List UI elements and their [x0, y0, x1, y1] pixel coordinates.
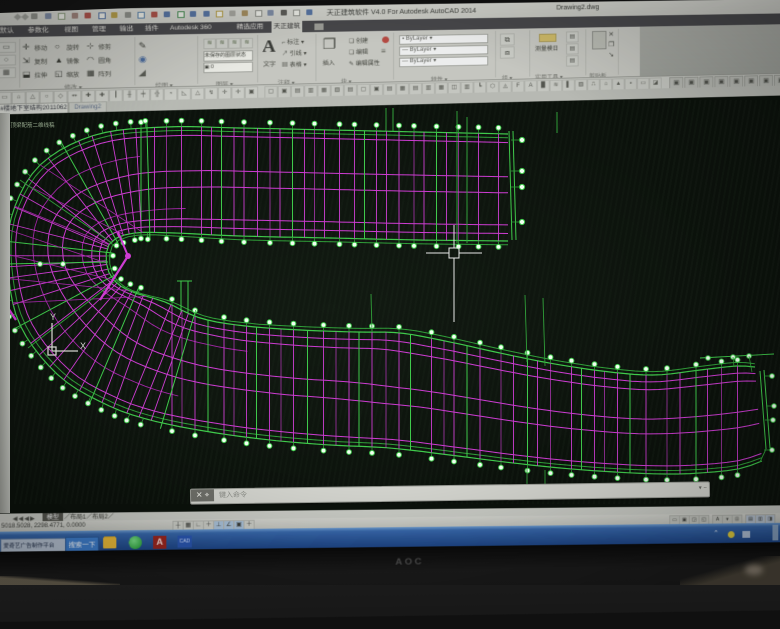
svg-text:Y: Y	[50, 312, 56, 322]
svg-text:X: X	[80, 341, 86, 351]
